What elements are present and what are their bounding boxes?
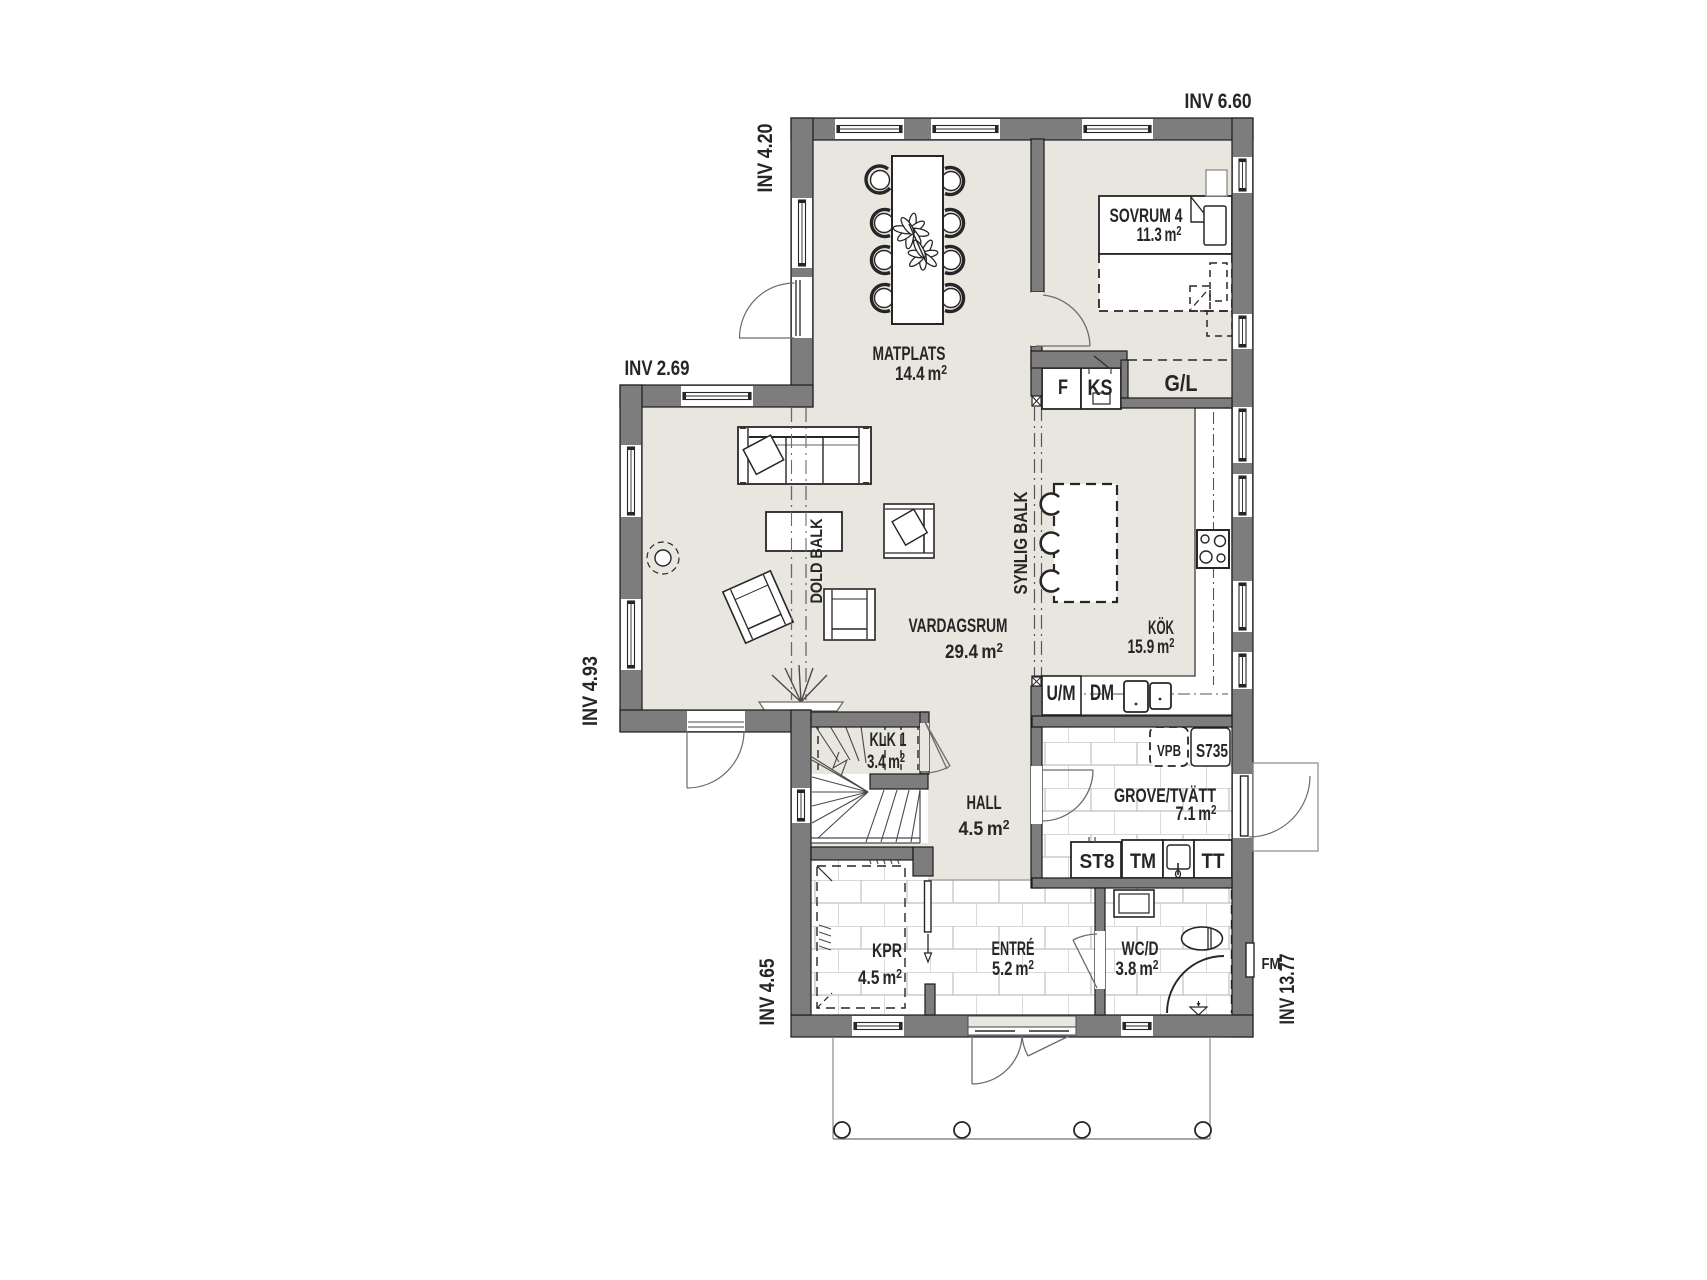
svg-text:F: F — [1058, 376, 1068, 399]
svg-text:INV 4.20: INV 4.20 — [754, 124, 777, 193]
svg-text:KLK 1: KLK 1 — [870, 730, 907, 751]
svg-text:INV 4.65: INV 4.65 — [756, 958, 779, 1025]
svg-text:SOVRUM 4: SOVRUM 4 — [1110, 206, 1183, 227]
svg-text:3.8 m2: 3.8 m2 — [1116, 957, 1159, 980]
svg-text:11.3 m2: 11.3 m2 — [1137, 223, 1182, 246]
svg-text:ST8: ST8 — [1080, 851, 1115, 873]
svg-text:15.9 m2: 15.9 m2 — [1128, 635, 1175, 658]
svg-text:3.4 m2: 3.4 m2 — [867, 750, 905, 773]
svg-text:KPR: KPR — [872, 941, 902, 962]
svg-text:4.5 m2: 4.5 m2 — [858, 966, 902, 989]
svg-text:HALL: HALL — [967, 793, 1002, 814]
svg-text:INV 13.77: INV 13.77 — [1276, 954, 1299, 1025]
svg-text:7.1 m2: 7.1 m2 — [1176, 802, 1217, 825]
svg-text:TT: TT — [1202, 850, 1225, 873]
svg-text:VARDAGSRUM: VARDAGSRUM — [909, 616, 1008, 637]
svg-text:4.5 m2: 4.5 m2 — [959, 817, 1010, 840]
svg-text:KS: KS — [1088, 375, 1113, 400]
svg-text:S735: S735 — [1196, 741, 1228, 761]
svg-text:INV 2.69: INV 2.69 — [625, 357, 690, 380]
svg-text:INV 6.60: INV 6.60 — [1185, 90, 1252, 113]
svg-text:INV 4.93: INV 4.93 — [579, 656, 602, 726]
svg-text:14.4 m2: 14.4 m2 — [895, 362, 947, 385]
svg-text:DM: DM — [1090, 680, 1114, 705]
svg-text:TM: TM — [1130, 850, 1156, 873]
svg-text:DOLD BALK: DOLD BALK — [807, 518, 826, 604]
svg-text:MATPLATS: MATPLATS — [873, 344, 946, 365]
svg-text:U/M: U/M — [1047, 682, 1076, 705]
svg-text:5.2 m2: 5.2 m2 — [992, 957, 1034, 980]
svg-text:G/L: G/L — [1165, 370, 1198, 396]
svg-text:SYNLIG BALK: SYNLIG BALK — [1011, 492, 1031, 595]
svg-text:VPB: VPB — [1157, 743, 1181, 760]
svg-text:29.4 m2: 29.4 m2 — [945, 640, 1003, 663]
